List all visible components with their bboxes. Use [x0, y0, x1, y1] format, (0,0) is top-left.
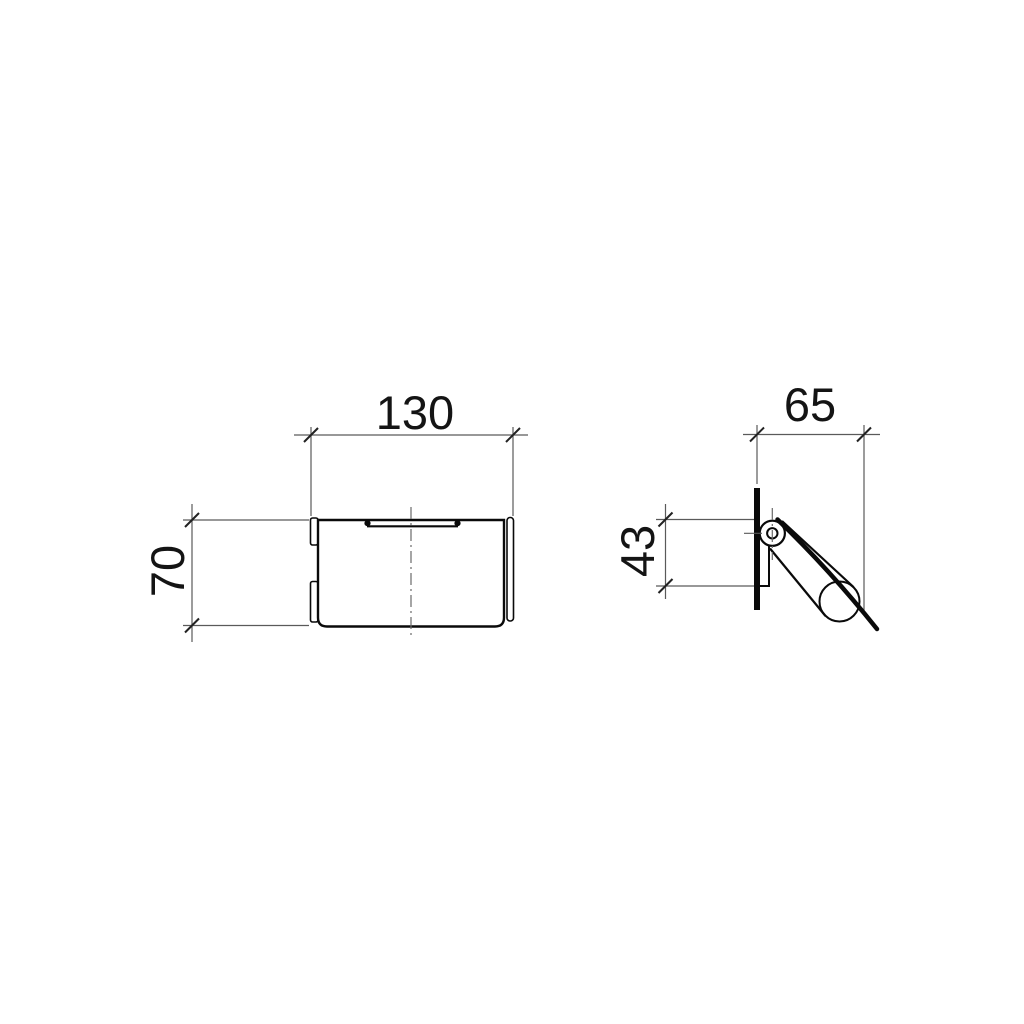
- dimension-label-height: 70: [141, 545, 194, 597]
- drawing-canvas: 130 70 65: [0, 0, 1024, 1024]
- dimension-side-pivot-height: 43: [611, 504, 758, 599]
- dimension-front-height: 70: [141, 504, 309, 642]
- wall-plate: [754, 488, 760, 610]
- holder-end-strip: [507, 518, 514, 622]
- dimension-side-depth: 65: [743, 378, 880, 612]
- cover-lip-end-dot: [454, 520, 460, 526]
- cover-lip-end-dot: [364, 520, 370, 526]
- technical-drawing: 130 70 65: [0, 0, 1024, 1024]
- dimension-label-pivot-height: 43: [611, 525, 664, 577]
- side-view: 65 43: [611, 378, 880, 629]
- front-view: 130 70: [141, 386, 528, 642]
- dimension-front-width: 130: [294, 386, 528, 516]
- dimension-label-width: 130: [376, 386, 454, 439]
- dimension-label-depth: 65: [784, 378, 836, 431]
